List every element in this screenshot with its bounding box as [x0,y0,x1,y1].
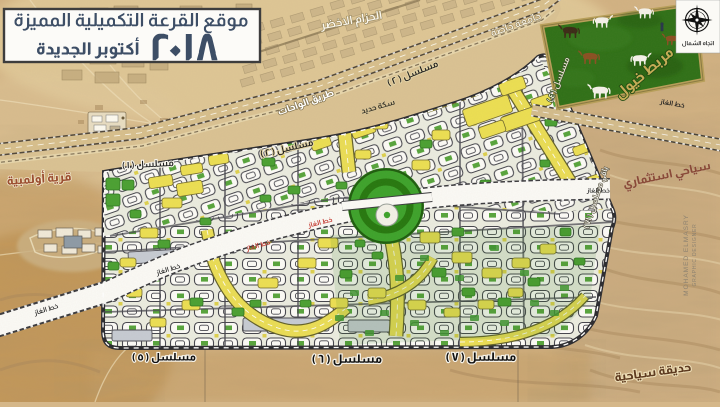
svg-text:MOHAMED ELMASRY: MOHAMED ELMASRY [683,214,690,296]
svg-text:GRAPHIC DESIGNER: GRAPHIC DESIGNER [692,223,698,286]
